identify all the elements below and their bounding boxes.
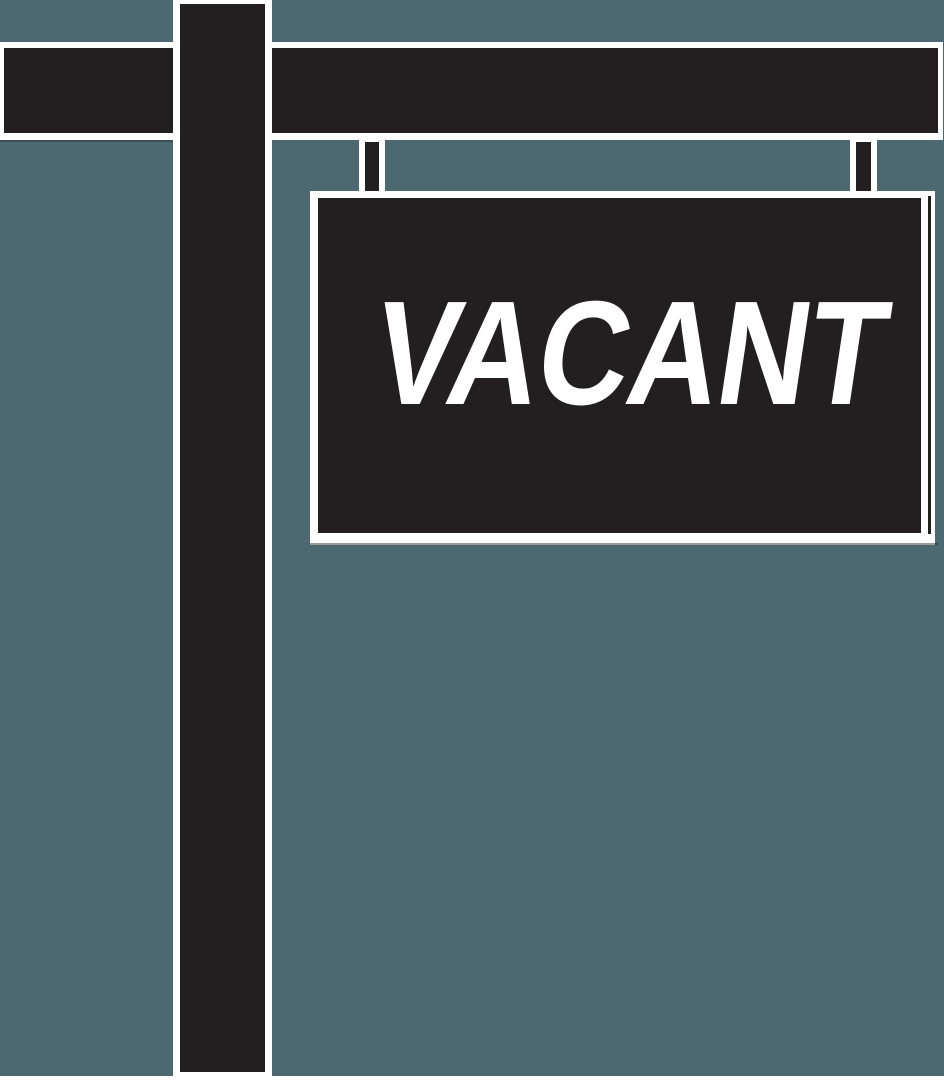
left-hanger [365, 142, 379, 192]
sign-bottom-hairline [310, 543, 938, 545]
crossbar-beam [4, 48, 938, 133]
vacant-sign-board: VACANT [318, 198, 921, 533]
bottom-edge-strip [0, 1076, 944, 1080]
sign-post [180, 4, 265, 1072]
right-hanger [856, 142, 871, 192]
sign-right-accent-line [928, 196, 931, 534]
vacant-sign-illustration: VACANT [0, 0, 944, 1080]
crossbar-shadow-hairline [0, 140, 173, 142]
sign-label: VACANT [365, 280, 897, 428]
